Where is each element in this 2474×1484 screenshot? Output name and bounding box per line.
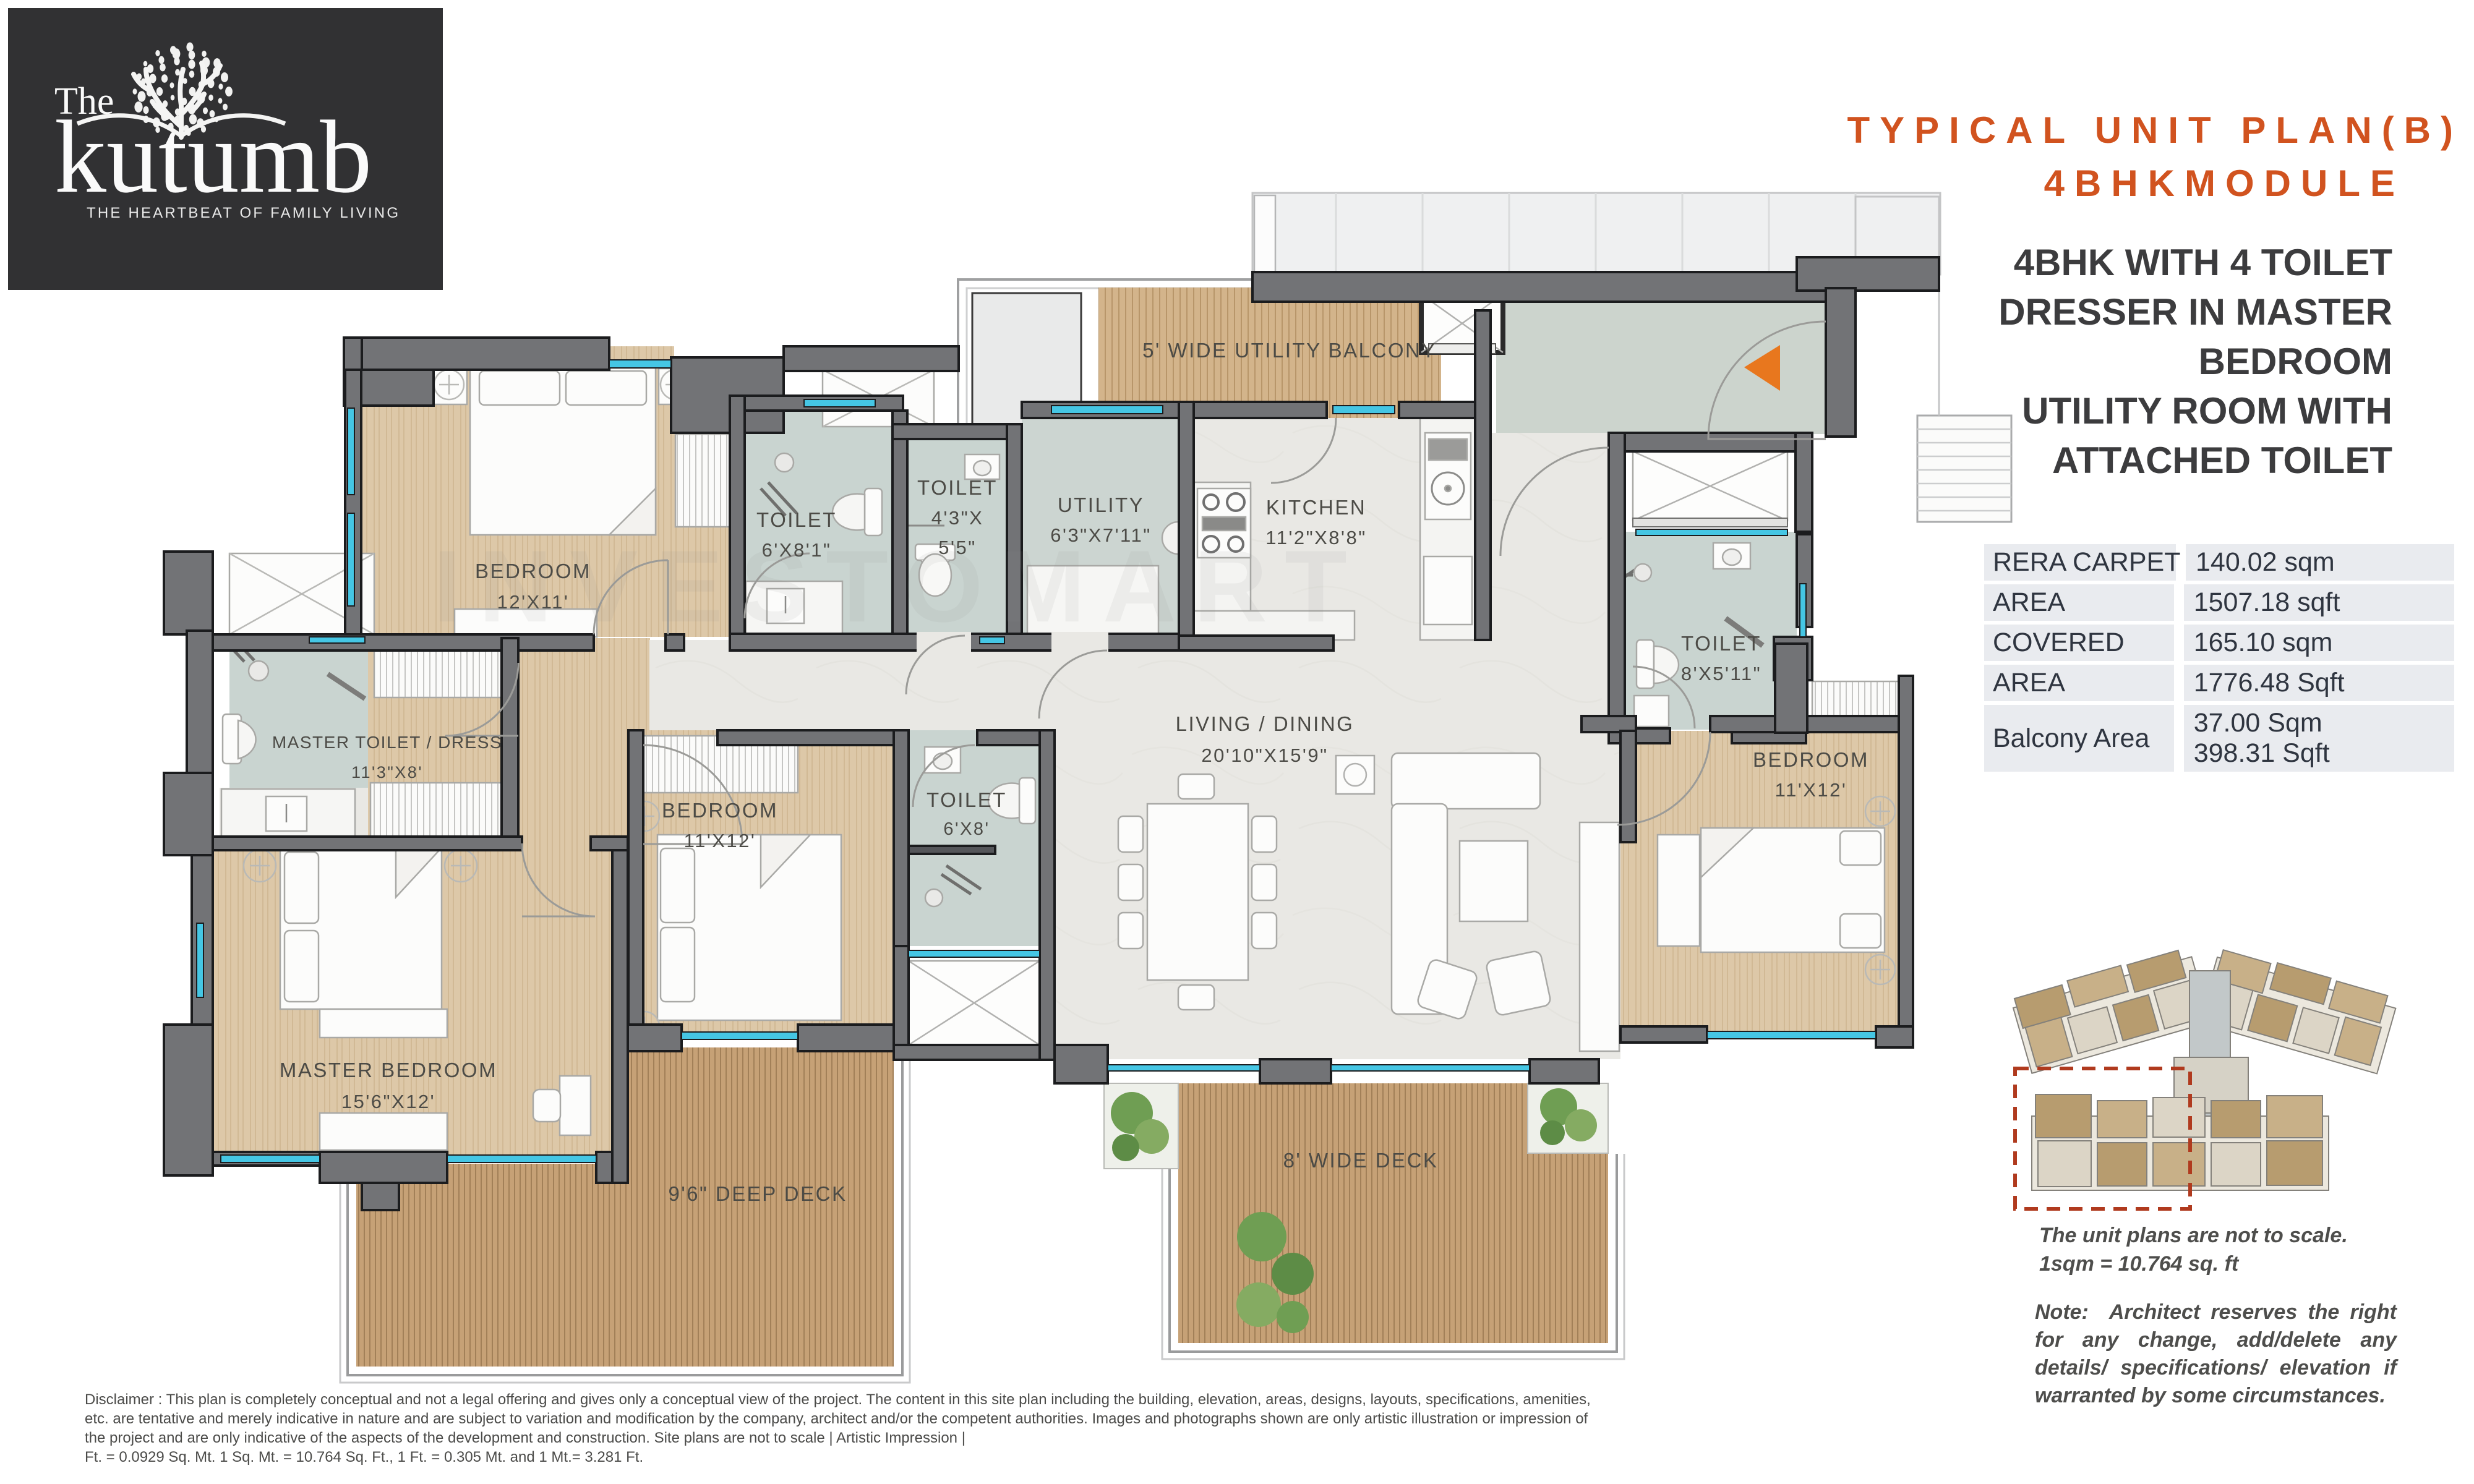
- svg-text:MASTER BEDROOM: MASTER BEDROOM: [280, 1059, 497, 1081]
- svg-text:5' WIDE UTILITY BALCONY: 5' WIDE UTILITY BALCONY: [1142, 339, 1437, 362]
- svg-text:4'3"X: 4'3"X: [931, 507, 984, 529]
- svg-text:INVESTOMART: INVESTOMART: [433, 529, 1364, 643]
- svg-text:20'10"X15'9": 20'10"X15'9": [1201, 744, 1328, 766]
- svg-text:11'3"X8': 11'3"X8': [351, 763, 423, 782]
- svg-text:TOILET: TOILET: [1681, 632, 1761, 655]
- svg-text:BEDROOM: BEDROOM: [1753, 748, 1869, 771]
- svg-text:8' WIDE DECK: 8' WIDE DECK: [1283, 1149, 1439, 1172]
- svg-text:8'X5'11": 8'X5'11": [1681, 663, 1761, 684]
- svg-text:9'6" DEEP DECK: 9'6" DEEP DECK: [668, 1182, 847, 1205]
- svg-text:11'X12': 11'X12': [1775, 779, 1847, 801]
- svg-text:UTILITY: UTILITY: [1058, 493, 1144, 516]
- svg-text:11'X12': 11'X12': [684, 830, 756, 851]
- svg-text:LIVING / DINING: LIVING / DINING: [1176, 712, 1355, 735]
- svg-text:TOILET: TOILET: [917, 476, 998, 499]
- svg-text:MASTER TOILET / DRESS: MASTER TOILET / DRESS: [272, 733, 502, 752]
- svg-text:KITCHEN: KITCHEN: [1266, 496, 1366, 519]
- svg-text:BEDROOM: BEDROOM: [662, 799, 778, 822]
- svg-text:TOILET: TOILET: [756, 508, 837, 531]
- svg-text:TOILET: TOILET: [927, 788, 1007, 811]
- svg-text:6'X8': 6'X8': [943, 819, 990, 839]
- svg-text:15'6"X12': 15'6"X12': [341, 1091, 435, 1112]
